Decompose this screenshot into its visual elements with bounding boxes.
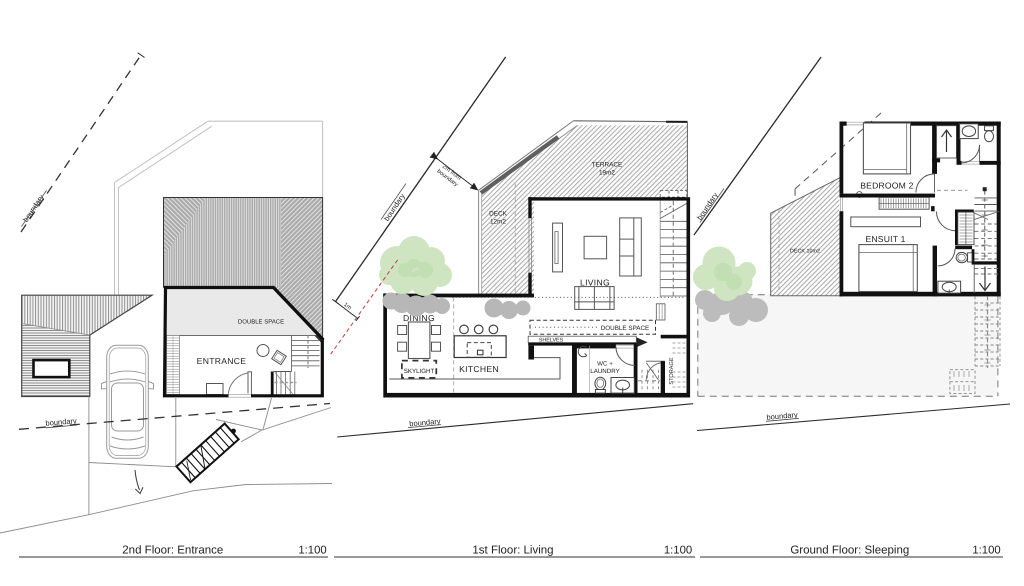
svg-text:DOUBLE SPACE: DOUBLE SPACE xyxy=(601,325,650,332)
svg-text:SHELVES: SHELVES xyxy=(539,338,564,344)
svg-text:1:100: 1:100 xyxy=(972,545,1000,557)
svg-text:ENTRANCE: ENTRANCE xyxy=(197,356,247,366)
svg-text:1:100: 1:100 xyxy=(664,545,692,557)
svg-text:DECK 10m2: DECK 10m2 xyxy=(790,249,820,255)
svg-text:KITCHEN: KITCHEN xyxy=(459,364,499,374)
svg-text:TERRACE: TERRACE xyxy=(592,162,623,169)
svg-text:STORAGE: STORAGE xyxy=(669,357,675,385)
svg-text:1st Floor: Living: 1st Floor: Living xyxy=(472,545,553,557)
svg-text:Ground Floor: Sleeping: Ground Floor: Sleeping xyxy=(790,545,909,557)
svg-text:1:100: 1:100 xyxy=(298,545,326,557)
svg-text:DECK: DECK xyxy=(489,211,507,218)
svg-text:SKYLIGHT: SKYLIGHT xyxy=(404,368,435,375)
svg-text:ENSUIT 1: ENSUIT 1 xyxy=(865,234,905,244)
svg-text:LIVING: LIVING xyxy=(580,278,610,288)
svg-text:2nd Floor: Entrance: 2nd Floor: Entrance xyxy=(122,545,223,557)
svg-text:WC +: WC + xyxy=(597,361,613,368)
svg-text:12m2: 12m2 xyxy=(490,219,506,226)
svg-text:19m2: 19m2 xyxy=(599,170,615,177)
svg-text:DOUBLE SPACE: DOUBLE SPACE xyxy=(238,319,284,326)
svg-text:BEDROOM 2: BEDROOM 2 xyxy=(860,180,913,190)
svg-text:LAUNDRY: LAUNDRY xyxy=(590,368,619,375)
